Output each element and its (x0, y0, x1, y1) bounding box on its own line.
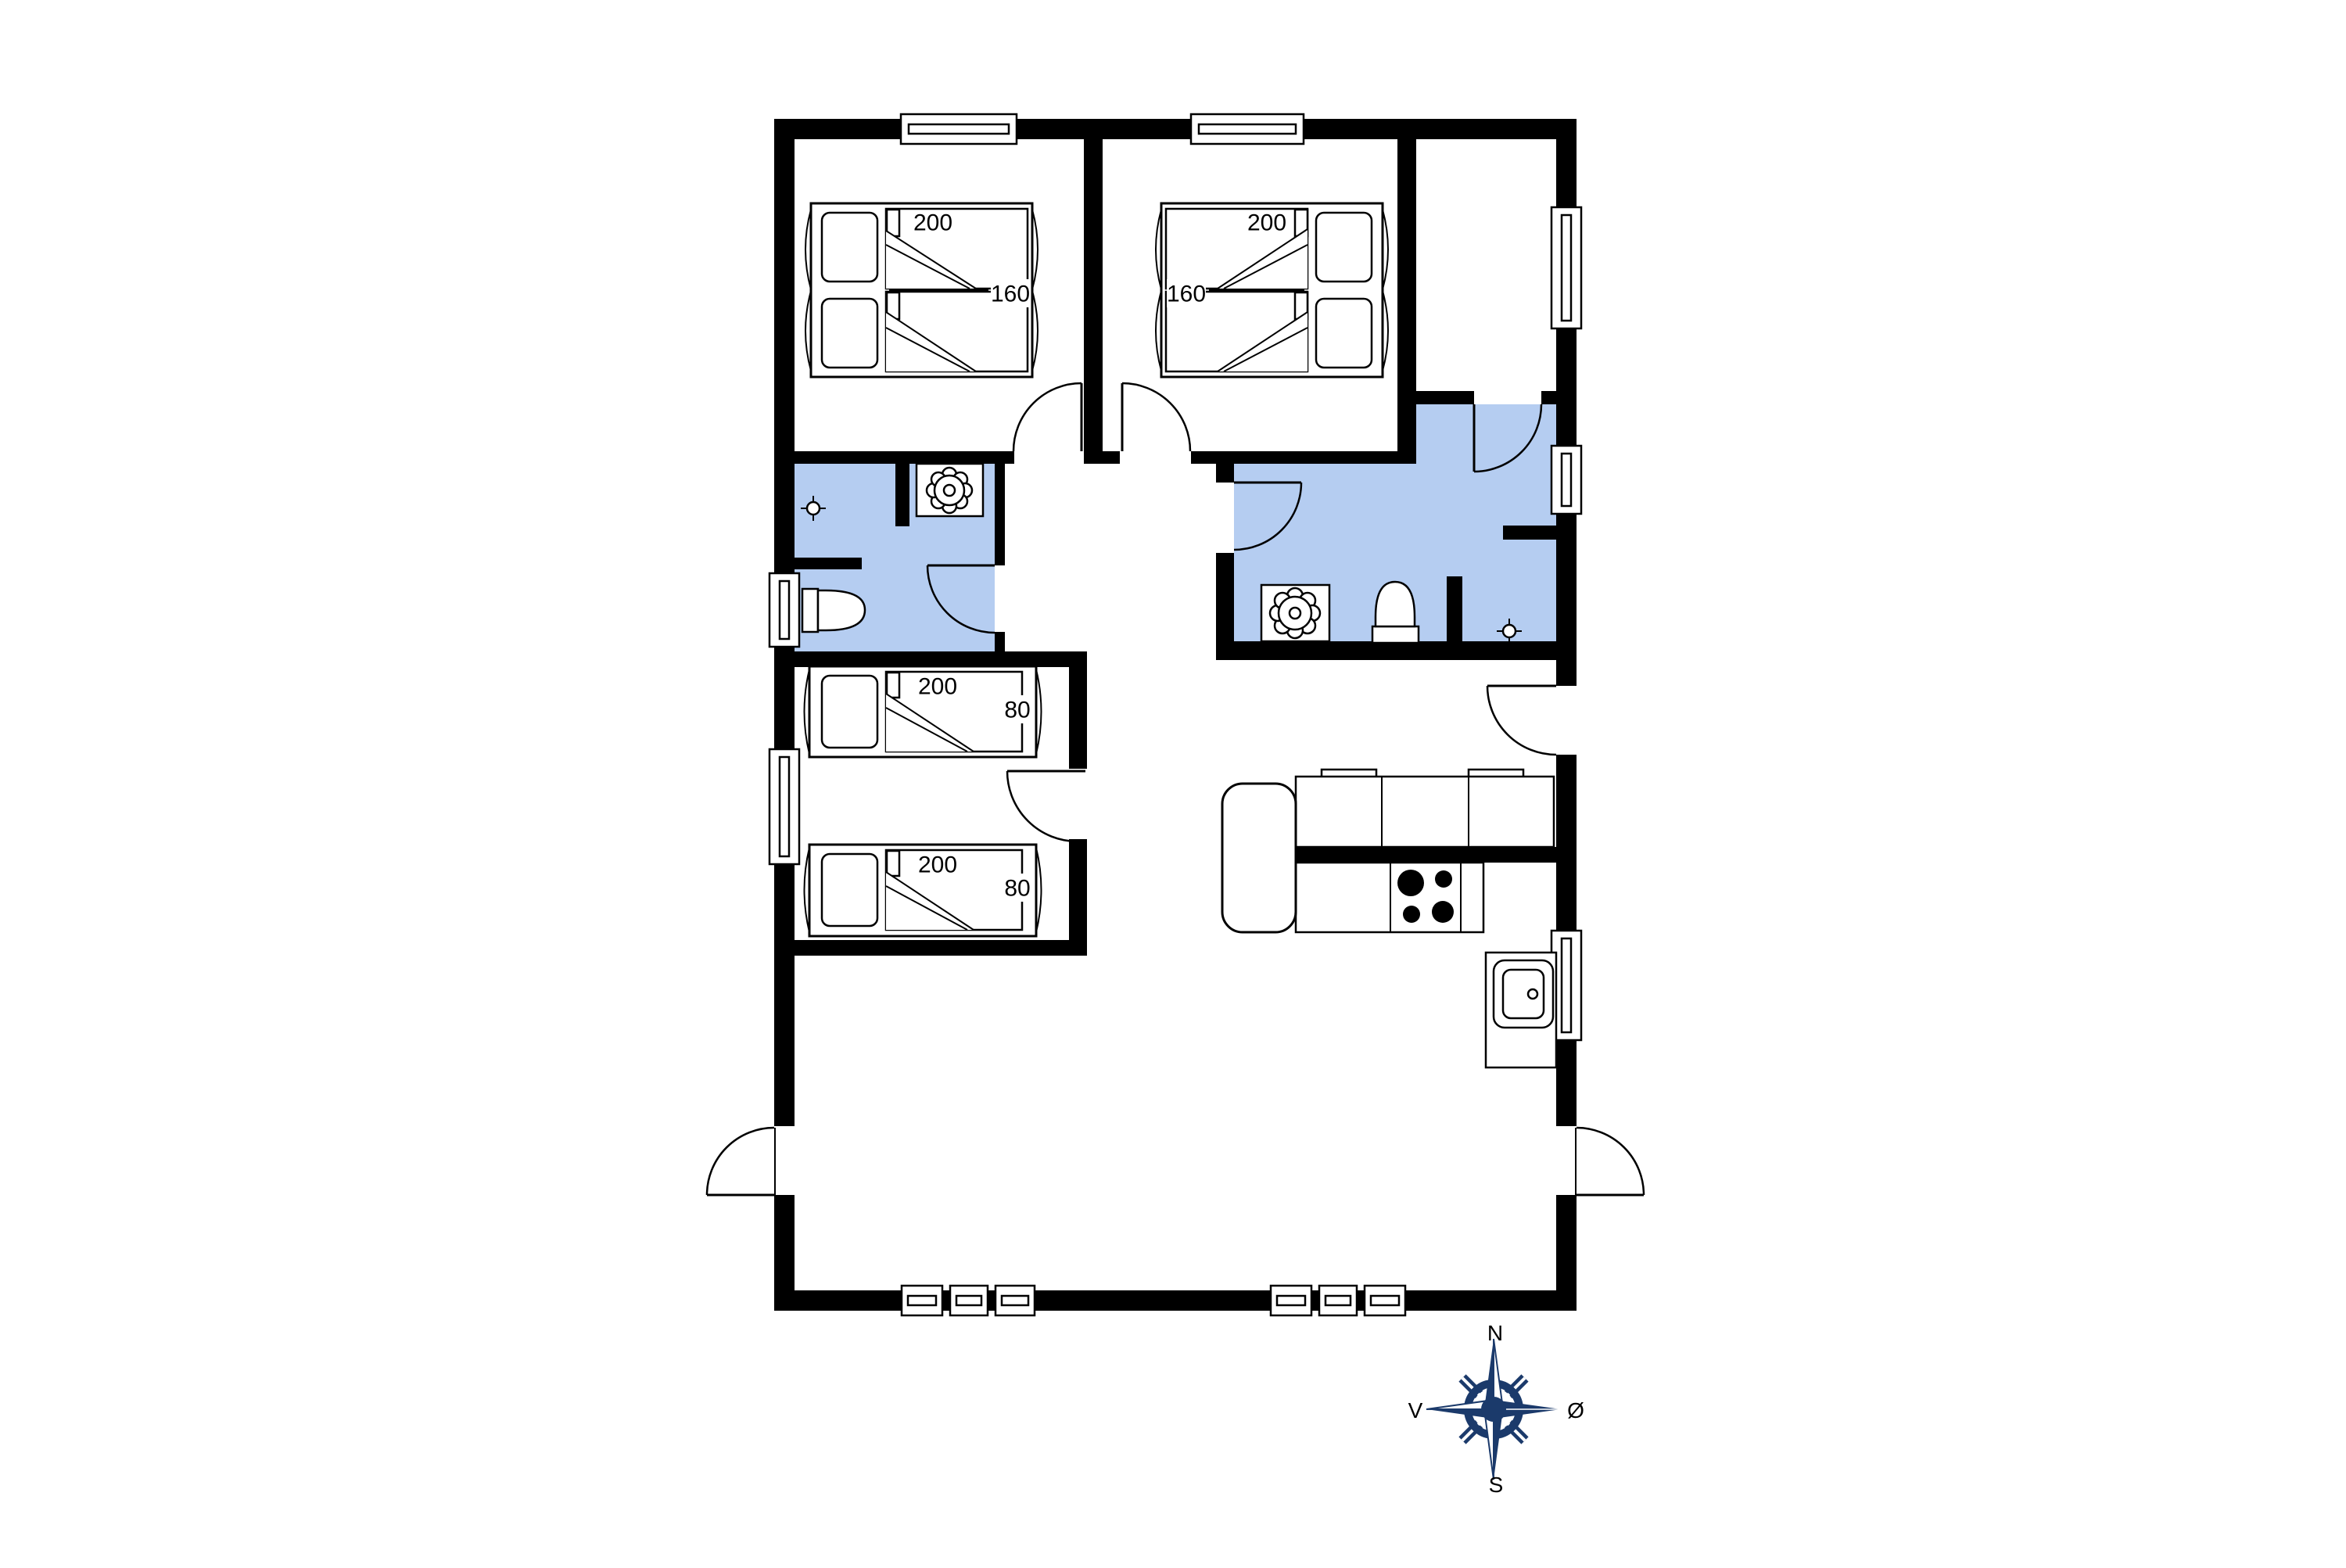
door-kitchen-back (1487, 686, 1556, 755)
wet-room-floors (795, 404, 1556, 651)
wall-bath-left-stub-h (795, 558, 862, 569)
window-bath-right-east (1551, 446, 1581, 514)
floor-plan-page: 200 160 200 160 200 (0, 0, 2346, 1564)
wall-kitchen-island (1296, 847, 1556, 863)
compass-west-label: V (1408, 1398, 1423, 1423)
pillow (822, 299, 877, 368)
bedroom-2: 200 160 (1156, 203, 1388, 377)
pillow (1316, 299, 1372, 368)
wall-bath-left-stub-v (895, 464, 909, 526)
door-entry-west (707, 1128, 775, 1195)
pillow (822, 676, 877, 748)
wall-shower-stub-v (1447, 576, 1462, 641)
pillow (1316, 213, 1372, 282)
window-living-south-1 (902, 1286, 1035, 1315)
kitchen (1222, 770, 1556, 1067)
kids-room: 200 80 200 80 (805, 666, 1042, 936)
window-kidsroom-west (769, 749, 799, 864)
kids-bed-bottom-width-label: 80 (1004, 876, 1030, 902)
door-bedroom2 (1122, 383, 1190, 451)
kids-bed-bottom-length-label: 200 (918, 852, 957, 878)
dining-table (1222, 784, 1296, 932)
single-bed-bottom: 200 80 (805, 845, 1042, 936)
kids-bed-top-width-label: 80 (1004, 698, 1030, 723)
compass-east-label: Ø (1567, 1398, 1584, 1423)
wall-hall-north-c (1191, 451, 1416, 464)
sink-left (917, 464, 983, 516)
sink-right (1261, 585, 1329, 641)
compass-south-label: S (1489, 1473, 1504, 1497)
kitchen-cabinets-north (1296, 777, 1554, 847)
wall-hall-north-b (1084, 451, 1120, 464)
wall-bath-right-west-a (1216, 464, 1234, 483)
wall-storage-south-a (1416, 391, 1474, 404)
kitchen-back-door-gap (1555, 686, 1578, 755)
wall-bedroom-divider (1084, 139, 1103, 464)
wall-south (774, 1290, 1577, 1311)
wall-hall-north-a (795, 451, 1014, 464)
door-kidsroom (1007, 771, 1085, 841)
door-bedroom1 (1013, 383, 1082, 451)
wall-bath-right-south (1216, 641, 1556, 660)
wall-bath-left-south (795, 651, 1087, 667)
bed1-width-label: 160 (991, 282, 1030, 307)
window-bedroom2-north (1191, 114, 1304, 144)
compass-rose: N S V Ø (1408, 1321, 1584, 1497)
bed2-length-label: 200 (1247, 210, 1286, 236)
wall-kidsroom-east-b (1069, 839, 1087, 956)
wall-kidsroom-south (795, 940, 1087, 956)
kids-bed-top-length-label: 200 (918, 674, 957, 700)
kitchen-sink (1494, 960, 1553, 1028)
compass-north-label: N (1487, 1321, 1503, 1345)
window-living-south-2 (1271, 1286, 1405, 1315)
wall-north (774, 119, 1577, 139)
east-entry-gap (1555, 1126, 1578, 1195)
wall-shower-stub-h (1503, 526, 1556, 540)
window-bath-left-west (769, 573, 799, 647)
bed1-length-label: 200 (913, 210, 952, 236)
wall-bedroom2-east (1397, 139, 1416, 464)
wall-kidsroom-east-a (1069, 667, 1087, 769)
bed2-width-label: 160 (1167, 282, 1206, 307)
single-bed-top: 200 80 (805, 666, 1042, 757)
door-entry-east (1576, 1128, 1644, 1195)
pillow (822, 213, 877, 282)
floor-plan-drawing: 200 160 200 160 200 (0, 0, 2346, 1564)
west-entry-gap (773, 1126, 796, 1195)
wall-storage-south-b (1541, 391, 1556, 404)
bedroom-1: 200 160 (805, 203, 1038, 377)
toilet-left (802, 589, 865, 632)
window-bedroom1-north (901, 114, 1017, 144)
window-storage-east (1551, 207, 1581, 328)
compass-center-dot (1481, 1397, 1506, 1422)
wall-bath-left-east-a (995, 464, 1005, 565)
pillow (822, 854, 877, 926)
